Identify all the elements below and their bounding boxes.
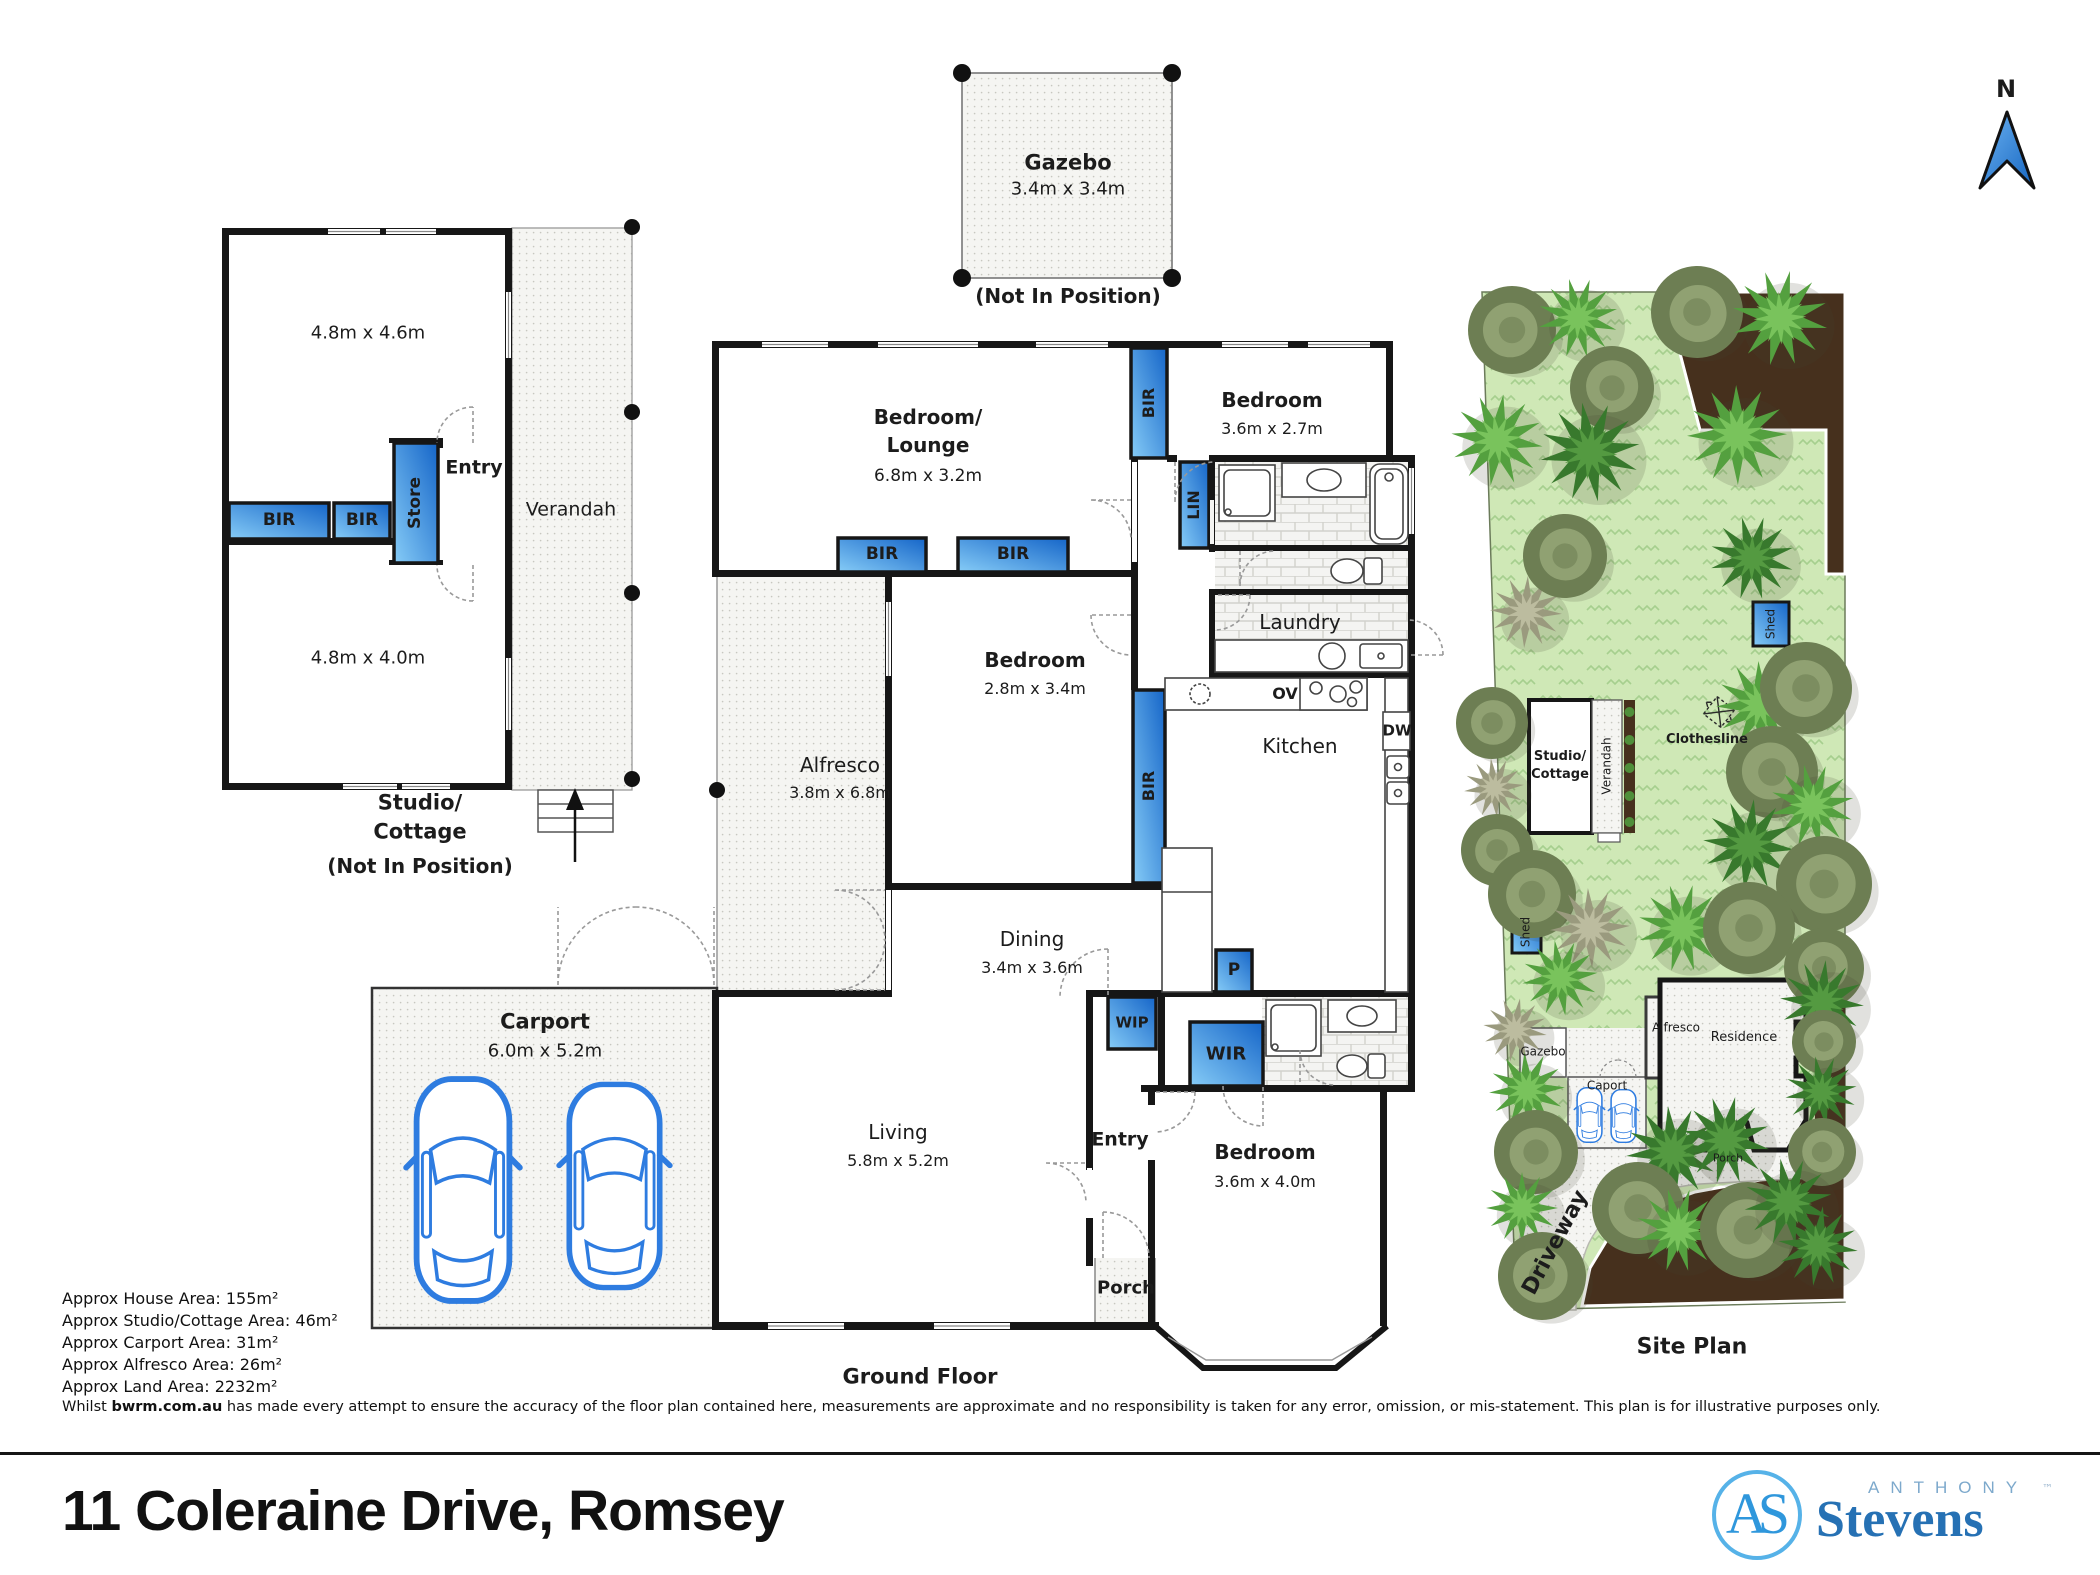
area-house: Approx House Area: 155m²: [62, 1289, 278, 1308]
logo-monogram: AS: [1726, 1480, 1780, 1547]
gazebo-title: Gazebo: [1024, 148, 1111, 177]
site-verandah-label: Verandah: [1599, 737, 1616, 794]
kitchen-label: Kitchen: [1262, 732, 1337, 760]
bedroom-bottom-title: Bedroom: [1214, 1138, 1315, 1166]
bedroom-bottom-dims: 3.6m x 4.0m: [1214, 1171, 1316, 1193]
area-studio: Approx Studio/Cottage Area: 46m²: [62, 1311, 338, 1330]
wip-label: WIP: [1115, 1013, 1148, 1034]
bedroom-top-title: Bedroom: [1221, 386, 1322, 414]
dishwasher-label: DW: [1383, 721, 1412, 742]
site-clothesline-label: Clothesline: [1666, 731, 1748, 749]
disclaimer-rest: has made every attempt to ensure the acc…: [222, 1399, 1880, 1415]
gazebo-note: (Not In Position): [975, 282, 1160, 310]
bir-vert-mid: BIR: [1138, 771, 1160, 801]
disclaimer: Whilst bwrm.com.au has made every attemp…: [62, 1399, 2062, 1415]
entry-label: Entry: [1091, 1127, 1148, 1154]
studio-room-bottom-dims: 4.8m x 4.0m: [311, 645, 425, 670]
studio-verandah: Verandah: [526, 497, 616, 524]
living-title: Living: [868, 1118, 927, 1146]
bir-h1: BIR: [866, 543, 898, 567]
dining-dims: 3.4m x 3.6m: [981, 957, 1083, 979]
studio-plan: [222, 219, 640, 862]
site-alfresco-label: Alfresco: [1652, 1020, 1700, 1037]
site-carport-label: Caport: [1587, 1078, 1627, 1095]
studio-store: Store: [404, 477, 428, 529]
pantry-label: P: [1228, 959, 1240, 983]
studio-entry: Entry: [445, 455, 502, 482]
footer-divider: [0, 1452, 2100, 1455]
bedroom-mid-dims: 2.8m x 3.4m: [984, 678, 1086, 700]
studio-bir-1: BIR: [263, 509, 295, 533]
floorplan-graphics: [0, 0, 2100, 1575]
tree-icon: [1468, 286, 1556, 374]
site-porch-label: Porch: [1713, 1150, 1743, 1165]
laundry-label: Laundry: [1259, 608, 1341, 636]
area-alfresco: Approx Alfresco Area: 26m²: [62, 1355, 282, 1374]
living-dims: 5.8m x 5.2m: [847, 1150, 949, 1172]
logo-trademark: ™: [2042, 1482, 2053, 1495]
oven-label: OV: [1272, 683, 1298, 705]
disclaimer-site: bwrm.com.au: [111, 1399, 222, 1415]
alfresco-title: Alfresco: [800, 751, 880, 779]
north-arrow-icon: [1980, 112, 2034, 188]
wir-label: WIR: [1206, 1041, 1246, 1066]
address-title: 11 Coleraine Drive, Romsey: [62, 1478, 784, 1544]
site-studio-label: Studio/ Cottage: [1531, 748, 1589, 784]
area-land: Approx Land Area: 2232m²: [62, 1377, 277, 1396]
bedroom-lounge-title: Bedroom/ Lounge: [874, 403, 983, 459]
porch-label: Porch: [1097, 1275, 1155, 1300]
ground-floor-label: Ground Floor: [842, 1362, 997, 1391]
alfresco-dims: 3.8m x 6.8m: [789, 782, 891, 804]
site-plan: [1445, 248, 1881, 1331]
site-shed-upper-label: Shed: [1763, 609, 1780, 639]
site-plan-title: Site Plan: [1637, 1333, 1748, 1364]
site-gazebo-label: Gazebo: [1520, 1044, 1565, 1061]
agency-logo: AS: [1712, 1470, 1802, 1560]
bir-vert-top: BIR: [1138, 388, 1160, 418]
carport-dims: 6.0m x 5.2m: [488, 1038, 602, 1063]
studio-title: Studio/ Cottage: [373, 789, 466, 848]
carport-title: Carport: [500, 1007, 590, 1036]
site-shed-lower-label: Shed: [1518, 917, 1535, 947]
dining-title: Dining: [1000, 925, 1065, 953]
floorplan-page: Gazebo 3.4m x 3.4m (Not In Position) N 4…: [0, 0, 2100, 1575]
gazebo-dims: 3.4m x 3.4m: [1011, 176, 1125, 201]
bedroom-lounge-dims: 6.8m x 3.2m: [874, 465, 982, 489]
area-carport: Approx Carport Area: 31m²: [62, 1333, 278, 1352]
bedroom-top-dims: 3.6m x 2.7m: [1221, 418, 1323, 440]
disclaimer-prefix: Whilst: [62, 1399, 111, 1415]
studio-note: (Not In Position): [327, 852, 512, 880]
lin-label: LIN: [1183, 490, 1205, 520]
studio-bir-2: BIR: [346, 509, 378, 533]
north-label: N: [1996, 73, 2016, 107]
bir-h2: BIR: [997, 543, 1029, 567]
logo-stevens: Stevens: [1816, 1490, 1984, 1549]
site-residence-label: Residence: [1711, 1029, 1777, 1047]
studio-room-top-dims: 4.8m x 4.6m: [311, 320, 425, 345]
bedroom-mid-title: Bedroom: [984, 646, 1085, 674]
